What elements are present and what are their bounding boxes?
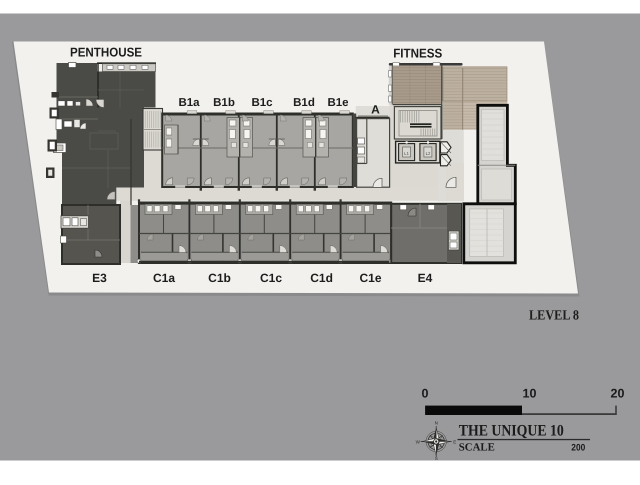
svg-text:C1a: C1a <box>153 271 175 285</box>
svg-text:B1d: B1d <box>293 97 315 109</box>
svg-text:0: 0 <box>422 387 429 401</box>
svg-text:E3: E3 <box>92 271 107 285</box>
svg-text:THE UNIQUE 10: THE UNIQUE 10 <box>459 423 564 440</box>
svg-text:PENTHOUSE: PENTHOUSE <box>70 45 142 60</box>
svg-text:C1b: C1b <box>208 271 231 285</box>
svg-text:B1e: B1e <box>327 97 348 109</box>
svg-text:B1a: B1a <box>178 97 200 109</box>
svg-text:N: N <box>435 421 438 426</box>
svg-text:200: 200 <box>571 442 585 453</box>
svg-text:C1c: C1c <box>260 271 282 285</box>
svg-text:SCALE: SCALE <box>459 442 495 454</box>
svg-text:B1c: B1c <box>251 97 273 109</box>
svg-text:B1b: B1b <box>213 97 235 109</box>
svg-text:C1d: C1d <box>310 271 333 285</box>
svg-text:S: S <box>435 456 438 461</box>
svg-text:W: W <box>416 439 421 444</box>
svg-text:E4: E4 <box>418 271 433 285</box>
svg-text:LEVEL 8: LEVEL 8 <box>529 309 579 324</box>
svg-text:A: A <box>371 103 380 117</box>
svg-text:L2: L2 <box>426 151 431 156</box>
svg-text:C1e: C1e <box>359 271 381 285</box>
svg-text:L1: L1 <box>404 151 409 156</box>
svg-text:10: 10 <box>523 387 537 401</box>
svg-text:E: E <box>453 439 456 444</box>
svg-text:20: 20 <box>611 387 625 401</box>
svg-text:FITNESS: FITNESS <box>393 46 442 61</box>
